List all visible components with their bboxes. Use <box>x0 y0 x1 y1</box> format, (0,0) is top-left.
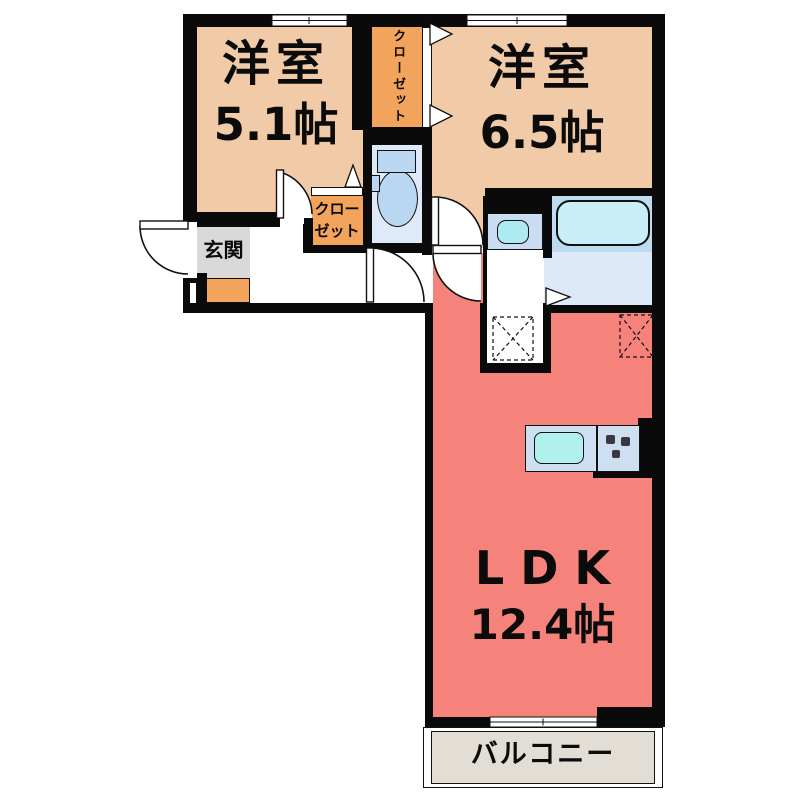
balcony-label: バルコニー <box>431 740 655 770</box>
entrance-door-arc <box>140 221 188 274</box>
wall-toilet-right <box>422 127 432 255</box>
closet-lower-label-line2: ゼット <box>311 221 363 243</box>
ldk-label: LDK <box>433 543 652 594</box>
wall-bedroom-left-bottom <box>183 212 280 227</box>
bedroom-right-label: 洋室 <box>432 42 652 95</box>
kitchen-sink-icon <box>534 432 584 464</box>
doorway-bedroom-left <box>280 210 304 224</box>
bathtub-icon <box>556 200 650 246</box>
bedroom-right-area: 6.5帖 <box>432 108 652 158</box>
closet-upper-label: クローゼット <box>372 30 422 124</box>
stove-burner-icon <box>621 437 630 446</box>
wall-washroom-bottom <box>543 305 665 313</box>
toilet-bowl-icon <box>377 170 418 227</box>
washbasin-bowl-icon <box>497 220 529 244</box>
stove-burner-icon <box>612 450 620 458</box>
wall-bedroom-right-bottom <box>485 188 665 196</box>
shoe-cabinet <box>205 278 250 303</box>
wall-ldk-left <box>425 313 433 717</box>
washroom <box>544 252 656 308</box>
wall-right <box>652 14 665 720</box>
stove-burner-icon <box>606 435 615 444</box>
wall-basin-top <box>483 196 543 213</box>
ldk-room <box>433 313 652 717</box>
wall-top <box>183 14 665 27</box>
wall-closet-lower-bottom <box>303 245 371 253</box>
closet-upper-door-strip <box>422 27 432 128</box>
doorway-entrance <box>183 222 197 278</box>
closet-lower-door-strip <box>311 187 363 196</box>
wall-bath-divider <box>543 196 552 258</box>
entrance-label: 玄関 <box>197 239 250 261</box>
kitchen-counter-divider <box>596 425 598 472</box>
wall-ldk-bottom <box>425 717 665 727</box>
toilet-tank-icon <box>377 150 416 173</box>
wall-hallway-bottom <box>183 303 433 313</box>
closet-lower-label-line1: クロー <box>311 199 363 221</box>
bedroom-right-door-bay <box>432 188 485 248</box>
ldk-area: 12.4帖 <box>433 602 652 648</box>
ldk-door-zone <box>433 253 483 313</box>
wall-toilet-bottom <box>363 243 432 253</box>
bedroom-left-label: 洋室 <box>197 38 355 91</box>
wall-notch <box>190 283 196 303</box>
floor-plan: 洋室 5.1帖 洋室 6.5帖 LDK 12.4帖 玄関 クローゼット クロー … <box>0 0 800 800</box>
closet-lower-label: クロー ゼット <box>311 199 363 243</box>
bedroom-left-area: 5.1帖 <box>180 100 372 150</box>
toilet-handle-icon <box>371 175 380 192</box>
